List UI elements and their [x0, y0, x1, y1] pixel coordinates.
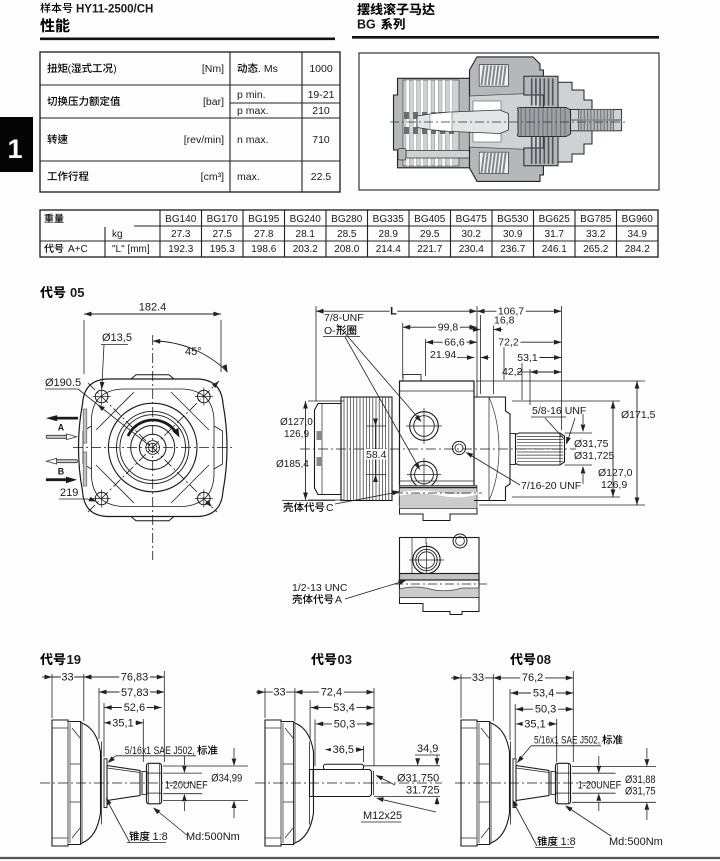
svg-text:19: 19 [67, 652, 81, 667]
svg-text:27.3: 27.3 [171, 229, 191, 240]
svg-text:99,8: 99,8 [438, 322, 459, 334]
svg-text:265.2: 265.2 [583, 244, 608, 255]
svg-text:50,3: 50,3 [535, 704, 556, 716]
svg-text:Ø31.750: Ø31.750 [397, 773, 439, 785]
svg-text:58.4: 58.4 [366, 449, 387, 461]
svg-text:53,4: 53,4 [533, 687, 554, 699]
svg-text:BG530: BG530 [497, 214, 529, 225]
svg-text:19-21: 19-21 [308, 89, 335, 101]
svg-text:1-20UNEF: 1-20UNEF [165, 779, 208, 791]
svg-text:[Nm]: [Nm] [202, 63, 224, 75]
svg-text:35,1: 35,1 [112, 717, 133, 729]
svg-text:p max.: p max. [237, 105, 269, 117]
svg-text:Md:500Nm: Md:500Nm [186, 831, 240, 843]
svg-text:33: 33 [472, 672, 484, 684]
svg-text:30.9: 30.9 [503, 229, 523, 240]
svg-text:Ø127,0: Ø127,0 [280, 417, 313, 428]
svg-text:1-20UNEF: 1-20UNEF [578, 779, 622, 791]
svg-text:182.4: 182.4 [139, 302, 167, 314]
svg-text:76,83: 76,83 [121, 672, 149, 684]
svg-text:52,6: 52,6 [124, 702, 145, 714]
svg-text:BG335: BG335 [373, 214, 405, 225]
svg-text:5/16x1 SAE J502,: 5/16x1 SAE J502, [125, 745, 195, 757]
svg-text:"L" [mm]: "L" [mm] [112, 244, 150, 255]
svg-text:76,2: 76,2 [522, 672, 543, 684]
svg-text:08: 08 [537, 652, 551, 667]
svg-text:236.7: 236.7 [500, 244, 525, 255]
svg-text:A: A [58, 423, 65, 433]
svg-text:53,4: 53,4 [333, 702, 354, 714]
svg-text:203.2: 203.2 [293, 244, 318, 255]
svg-text:195.3: 195.3 [210, 244, 235, 255]
svg-text:31.725: 31.725 [406, 785, 440, 797]
svg-text:66,6: 66,6 [444, 337, 465, 349]
svg-text:53,1: 53,1 [517, 352, 538, 364]
svg-text:1: 1 [7, 134, 22, 164]
svg-text:28.5: 28.5 [337, 229, 357, 240]
svg-text:34,9: 34,9 [417, 743, 438, 755]
svg-text:1/2-13 UNC: 1/2-13 UNC [292, 582, 348, 594]
svg-text:Ø34,99: Ø34,99 [211, 773, 242, 785]
svg-text:284.2: 284.2 [625, 244, 650, 255]
svg-text:27.8: 27.8 [254, 229, 274, 240]
svg-text:198.6: 198.6 [251, 244, 276, 255]
svg-text:Ø127,0: Ø127,0 [598, 467, 633, 479]
svg-text:35,1: 35,1 [524, 718, 545, 730]
svg-text:O-: O- [324, 325, 336, 337]
svg-text:Ø31,75: Ø31,75 [574, 438, 609, 450]
svg-text:Ø185,4: Ø185,4 [276, 459, 309, 470]
svg-text:33: 33 [61, 672, 73, 684]
svg-text:05: 05 [70, 285, 84, 300]
svg-text:45°: 45° [185, 346, 202, 358]
svg-text:BG960: BG960 [622, 214, 654, 225]
svg-text:5/8-16 UNF: 5/8-16 UNF [532, 405, 586, 417]
svg-text:50,3: 50,3 [334, 719, 355, 731]
svg-text:21.94: 21.94 [430, 349, 456, 361]
svg-text:Ø31,725: Ø31,725 [574, 450, 614, 462]
svg-text:Ø190.5: Ø190.5 [45, 377, 81, 389]
svg-text:1000: 1000 [309, 63, 333, 75]
svg-text:HY11-2500/CH: HY11-2500/CH [76, 4, 153, 16]
svg-text:33.2: 33.2 [586, 229, 606, 240]
svg-text:): ) [113, 63, 117, 75]
svg-text:210: 210 [312, 105, 330, 117]
svg-text:BG195: BG195 [248, 214, 280, 225]
svg-text:126,9: 126,9 [601, 479, 627, 491]
svg-text:max.: max. [237, 171, 260, 183]
svg-text:28.1: 28.1 [296, 229, 316, 240]
svg-text:kg: kg [112, 229, 123, 240]
svg-text:30.2: 30.2 [462, 229, 482, 240]
svg-text:03: 03 [338, 652, 352, 667]
svg-text:214.4: 214.4 [376, 244, 401, 255]
svg-text:[bar]: [bar] [203, 96, 224, 108]
svg-text:. Ms: . Ms [258, 63, 278, 75]
svg-text:(: ( [68, 63, 72, 75]
svg-text:BG240: BG240 [290, 214, 322, 225]
svg-text:72,4: 72,4 [321, 686, 342, 698]
svg-text:31.7: 31.7 [545, 229, 565, 240]
svg-text:BG170: BG170 [207, 214, 239, 225]
svg-text:16,8: 16,8 [494, 315, 515, 327]
svg-text:BG: BG [357, 18, 376, 32]
svg-text:Ø171,5: Ø171,5 [621, 409, 656, 421]
svg-text:28.9: 28.9 [379, 229, 399, 240]
svg-text:57,83: 57,83 [121, 687, 149, 699]
svg-text:1:8: 1:8 [153, 831, 168, 843]
svg-text:246.1: 246.1 [542, 244, 567, 255]
svg-text:221.7: 221.7 [417, 244, 442, 255]
svg-text:BG785: BG785 [580, 214, 612, 225]
svg-text:5/16x1 SAE J502,: 5/16x1 SAE J502, [534, 735, 600, 747]
svg-text:710: 710 [312, 134, 330, 146]
svg-text:p min.: p min. [237, 89, 266, 101]
svg-text:22.5: 22.5 [311, 171, 332, 183]
svg-text:BG405: BG405 [414, 214, 446, 225]
svg-text:[rev/min]: [rev/min] [184, 134, 224, 146]
svg-text:1:8: 1:8 [561, 836, 576, 848]
svg-text:A+C: A+C [68, 244, 88, 255]
svg-text:7/8-UNF: 7/8-UNF [324, 312, 364, 324]
svg-text:230.4: 230.4 [459, 244, 484, 255]
svg-text:L: L [390, 306, 397, 318]
svg-text:72,2: 72,2 [498, 337, 519, 349]
svg-text:27.5: 27.5 [213, 229, 233, 240]
svg-text:36,5: 36,5 [333, 744, 354, 756]
svg-text:Ø31,88: Ø31,88 [625, 774, 656, 786]
svg-text:M12x25: M12x25 [363, 810, 402, 822]
svg-text:34.9: 34.9 [628, 229, 648, 240]
svg-text:BG140: BG140 [165, 214, 197, 225]
svg-text:BG280: BG280 [331, 214, 363, 225]
svg-text:[cm³]: [cm³] [201, 171, 224, 183]
svg-text:192.3: 192.3 [168, 244, 193, 255]
svg-text:33: 33 [273, 686, 285, 698]
svg-text:BG625: BG625 [539, 214, 571, 225]
svg-text:B: B [58, 467, 64, 477]
svg-text:A: A [335, 594, 342, 606]
svg-text:BG475: BG475 [456, 214, 488, 225]
svg-text:7/16-20 UNF: 7/16-20 UNF [521, 480, 581, 492]
svg-text:C: C [326, 502, 334, 514]
svg-text:Ø31,75: Ø31,75 [625, 786, 656, 798]
svg-text:219: 219 [60, 487, 78, 499]
svg-text:208.0: 208.0 [334, 244, 359, 255]
svg-text:29.5: 29.5 [420, 229, 440, 240]
svg-text:Md:500Nm: Md:500Nm [609, 836, 663, 848]
svg-text:Ø13,5: Ø13,5 [102, 332, 132, 344]
svg-text:n max.: n max. [237, 134, 269, 146]
